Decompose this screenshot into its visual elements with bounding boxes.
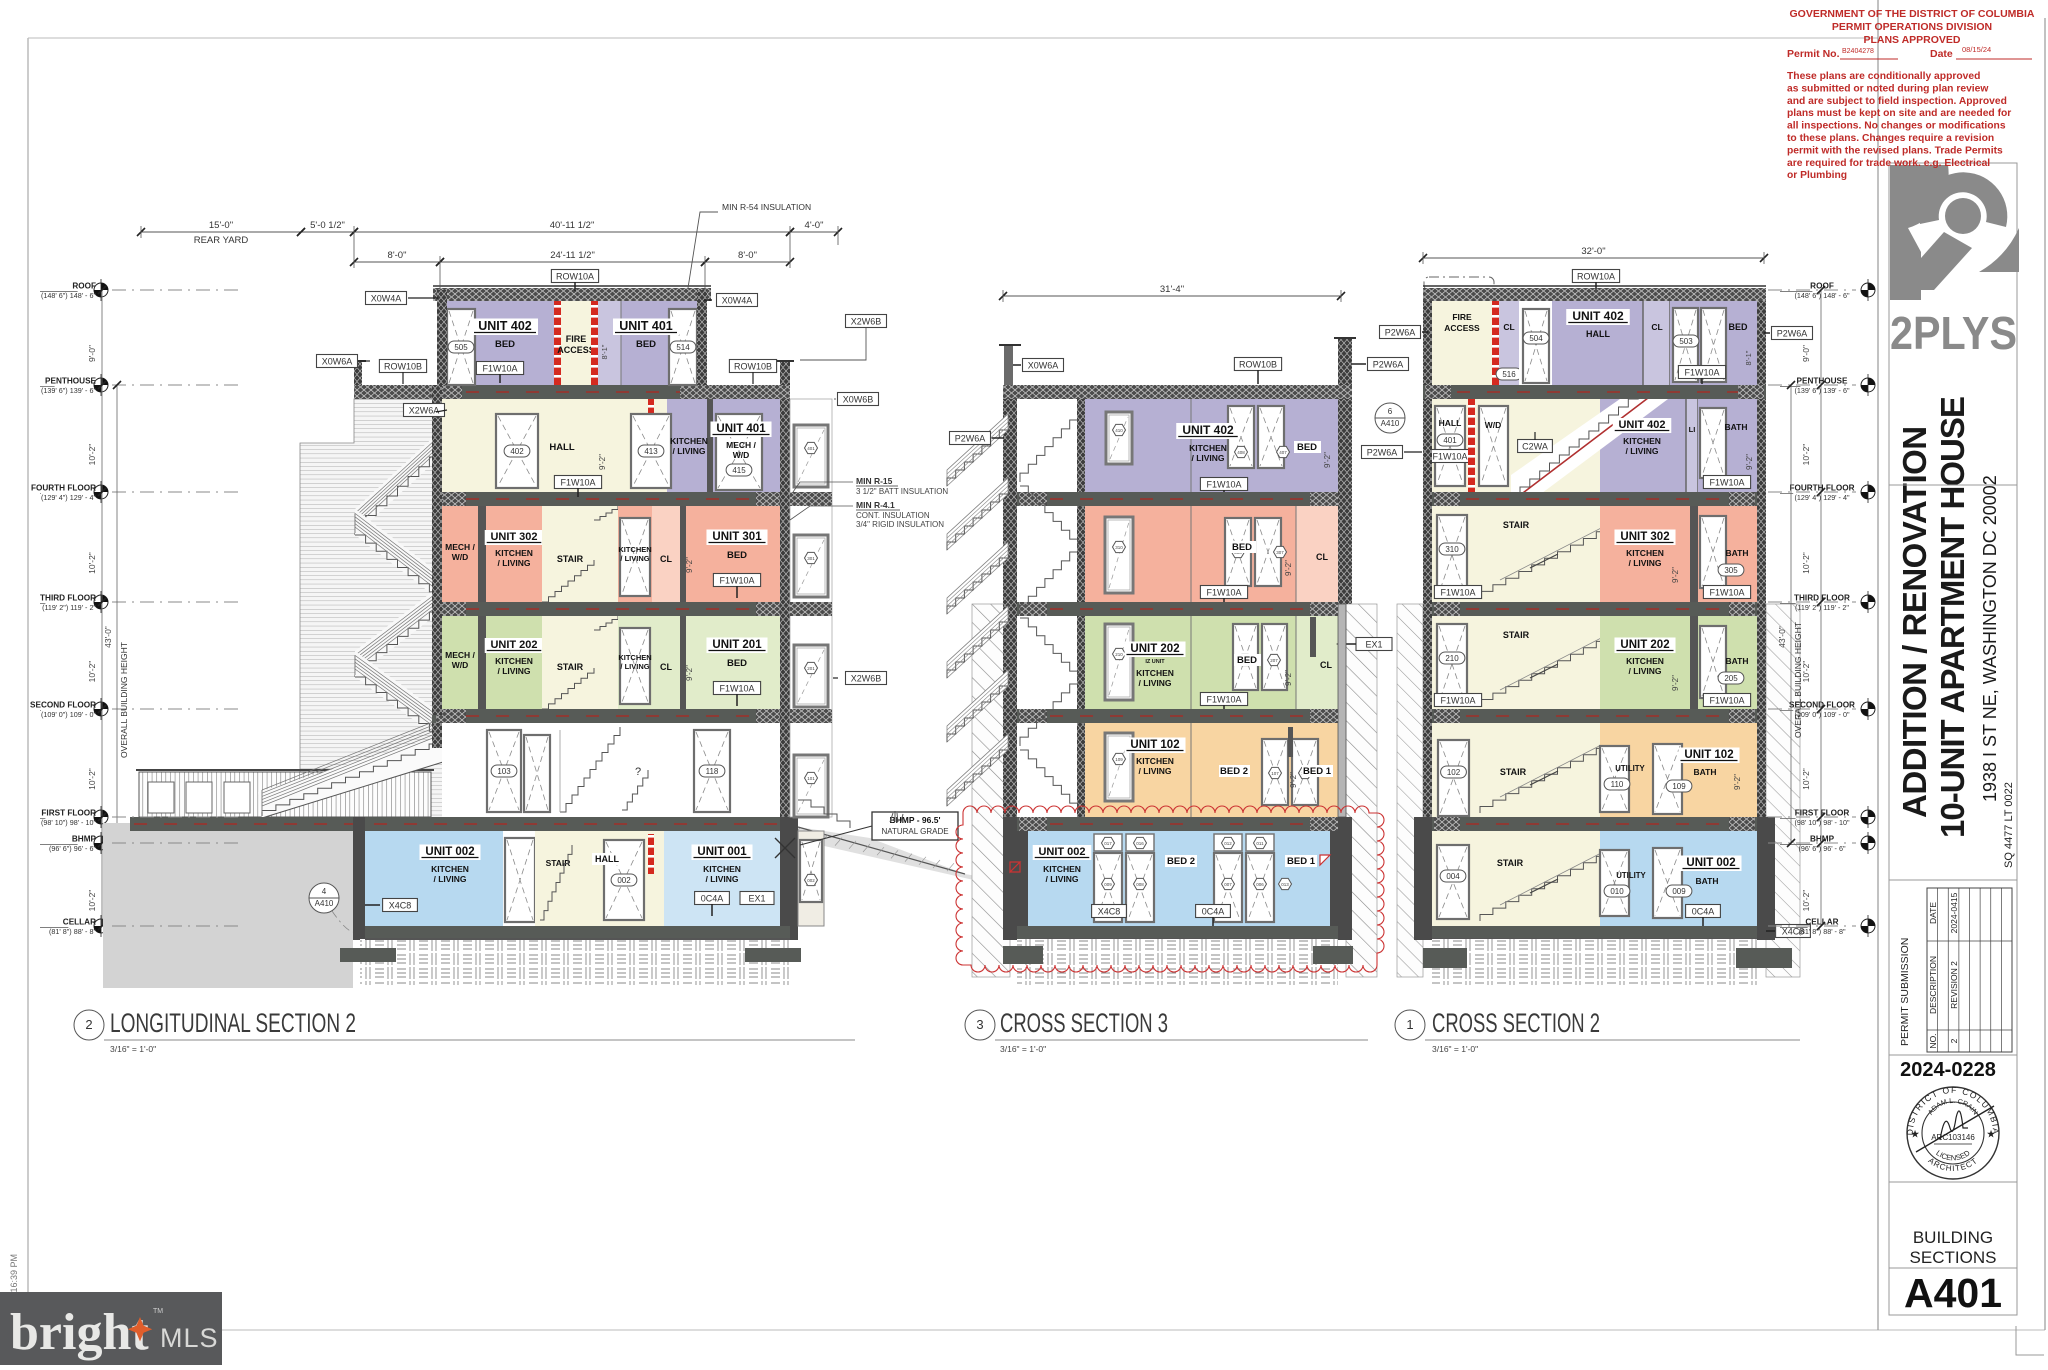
svg-text:UNIT 402: UNIT 402 (1618, 419, 1665, 431)
svg-text:410: 410 (1115, 428, 1123, 433)
svg-text:/ LIVING: / LIVING (620, 554, 649, 563)
svg-text:F1W10A: F1W10A (1709, 587, 1744, 597)
svg-text:40'-11 1/2": 40'-11 1/2" (550, 220, 595, 231)
svg-text:DATE: DATE (1928, 902, 1938, 924)
svg-text:401: 401 (807, 446, 815, 451)
svg-text:(139' 6") 139' - 6": (139' 6") 139' - 6" (41, 386, 96, 395)
svg-text:STAIR: STAIR (557, 662, 584, 672)
svg-text:/ LIVING: / LIVING (433, 874, 466, 884)
svg-text:LONGITUDINAL SECTION 2: LONGITUDINAL SECTION 2 (110, 1008, 356, 1038)
svg-text:8'-0": 8'-0" (738, 250, 757, 261)
svg-text:?: ? (635, 766, 641, 778)
svg-text:4'-0": 4'-0" (805, 220, 824, 231)
svg-text:10'-2": 10'-2" (87, 444, 97, 466)
svg-text:10'-2": 10'-2" (87, 552, 97, 574)
svg-text:BED: BED (1728, 322, 1748, 332)
svg-text:KITCHEN: KITCHEN (1043, 864, 1081, 874)
svg-text:(119' 2") 119' - 2": (119' 2") 119' - 2" (1795, 603, 1849, 612)
svg-text:PERMIT OPERATIONS DIVISION: PERMIT OPERATIONS DIVISION (1832, 21, 1992, 33)
svg-text:CL: CL (660, 554, 672, 564)
svg-text:9'-2": 9'-2" (1289, 772, 1298, 788)
svg-text:BED 2: BED 2 (1167, 856, 1195, 867)
svg-text:301: 301 (807, 556, 815, 561)
svg-text:504: 504 (1529, 334, 1543, 343)
svg-text:/ LIVING: / LIVING (1628, 558, 1661, 568)
svg-text:OVERALL BUILDING HEIGHT: OVERALL BUILDING HEIGHT (1793, 622, 1803, 738)
svg-text:C2WA: C2WA (1522, 441, 1548, 451)
svg-text:HALL: HALL (595, 854, 619, 864)
svg-text:B2404278: B2404278 (1842, 48, 1874, 55)
svg-text:to these plans. Changes requi: to these plans. Changes require a revisi… (1787, 133, 1994, 144)
svg-text:009: 009 (1672, 887, 1686, 896)
svg-text:8'-0": 8'-0" (388, 250, 407, 261)
svg-text:IZ UNIT: IZ UNIT (1145, 659, 1165, 665)
svg-text:/ LIVING: / LIVING (1628, 666, 1661, 676)
svg-text:2024-0228: 2024-0228 (1900, 1059, 1996, 1081)
svg-text:EX1: EX1 (1365, 639, 1382, 649)
svg-text:UNIT 402: UNIT 402 (1182, 423, 1234, 437)
svg-text:(129' 4") 129' - 4": (129' 4") 129' - 4" (41, 493, 96, 502)
svg-text:GOVERNMENT OF THE DISTRICT OF: GOVERNMENT OF THE DISTRICT OF COLUMBIA (1790, 8, 2035, 20)
svg-text:503: 503 (1679, 337, 1693, 346)
svg-text:CL: CL (1320, 660, 1332, 670)
svg-text:/ LIVING: / LIVING (497, 558, 530, 568)
svg-text:(98' 10") 98' - 10": (98' 10") 98' - 10" (41, 818, 96, 827)
svg-text:F1W10A: F1W10A (1432, 451, 1467, 461)
svg-text:X0W4A: X0W4A (371, 293, 402, 303)
svg-text:SECOND FLOOR: SECOND FLOOR (30, 701, 96, 710)
svg-text:P2W6A: P2W6A (1777, 328, 1808, 338)
svg-text:(119' 2") 119' - 2": (119' 2") 119' - 2" (42, 603, 96, 612)
svg-text:THIRD FLOOR: THIRD FLOOR (40, 594, 96, 603)
svg-text:BED: BED (1237, 655, 1257, 666)
svg-text:KITCHEN: KITCHEN (1623, 436, 1661, 446)
svg-text:X0W6A: X0W6A (1028, 360, 1059, 370)
svg-text:plans must be kept on site and: plans must be kept on site and are neede… (1787, 108, 2011, 119)
svg-text:24'-11 1/2": 24'-11 1/2" (550, 250, 595, 261)
svg-text:ROW10A: ROW10A (1577, 271, 1615, 281)
svg-text:101: 101 (807, 776, 815, 781)
svg-text:32'-0": 32'-0" (1581, 246, 1605, 257)
svg-text:15'-0": 15'-0" (209, 220, 233, 231)
svg-text:408: 408 (1237, 450, 1245, 455)
svg-text:F1W10A: F1W10A (719, 575, 754, 585)
svg-text:★: ★ (1987, 1129, 1996, 1139)
svg-text:MECH /: MECH / (726, 440, 756, 450)
svg-text:X2W6B: X2W6B (851, 673, 882, 683)
svg-text:305: 305 (1724, 566, 1738, 575)
svg-text:BED 1: BED 1 (1287, 856, 1316, 867)
svg-text:MIN R-54 INSULATION: MIN R-54 INSULATION (722, 202, 811, 212)
svg-text:UNIT 401: UNIT 401 (716, 423, 766, 435)
svg-text:/ LIVING: / LIVING (1191, 453, 1224, 463)
svg-text:0C4A: 0C4A (701, 893, 724, 903)
svg-text:BATH: BATH (1726, 548, 1749, 558)
svg-text:516: 516 (1502, 370, 1516, 379)
svg-text:X0W4A: X0W4A (722, 295, 753, 305)
svg-text:109: 109 (1672, 782, 1686, 791)
svg-text:007: 007 (1224, 882, 1232, 887)
svg-text:PENTHOUSE: PENTHOUSE (45, 377, 96, 386)
svg-text:X2W6A: X2W6A (409, 405, 440, 415)
svg-text:010: 010 (1610, 887, 1624, 896)
svg-text:CL: CL (660, 662, 672, 672)
svg-text:CROSS SECTION 2: CROSS SECTION 2 (1432, 1008, 1600, 1038)
svg-text:P2W6A: P2W6A (955, 433, 986, 443)
svg-text:ACCESS: ACCESS (557, 345, 595, 355)
svg-text:CROSS SECTION 3: CROSS SECTION 3 (1000, 1008, 1168, 1038)
svg-text:10'-2": 10'-2" (87, 661, 97, 683)
svg-text:107: 107 (1271, 771, 1279, 776)
svg-text:BED: BED (495, 339, 515, 350)
svg-text:BUILDING: BUILDING (1913, 1228, 1993, 1247)
svg-text:KITCHEN: KITCHEN (618, 653, 651, 662)
svg-text:10'-2": 10'-2" (1801, 890, 1811, 912)
svg-text:118: 118 (706, 767, 719, 776)
svg-text:1938 I ST NE, WASHINGTON DC 20: 1938 I ST NE, WASHINGTON DC 20002 (1980, 475, 2000, 802)
svg-text:ARC103146: ARC103146 (1931, 1133, 1975, 1142)
svg-text:BED: BED (1297, 442, 1317, 453)
svg-text:F1W10A: F1W10A (482, 363, 517, 373)
svg-text:STAIR: STAIR (1497, 858, 1524, 868)
svg-text:EX1: EX1 (748, 893, 765, 903)
svg-text:KITCHEN: KITCHEN (1626, 656, 1664, 666)
svg-text:/ LIVING: / LIVING (1138, 766, 1171, 776)
svg-text:NATURAL GRADE: NATURAL GRADE (881, 827, 948, 836)
svg-text:FOURTH FLOOR: FOURTH FLOOR (31, 484, 96, 493)
svg-text:REAR YARD: REAR YARD (194, 235, 249, 246)
svg-text:F1W10A: F1W10A (560, 477, 595, 487)
svg-text:415: 415 (732, 466, 746, 475)
svg-text:08/15/24: 08/15/24 (1962, 45, 1991, 54)
svg-text:F1W10A: F1W10A (1709, 477, 1744, 487)
svg-text:BATH: BATH (1726, 656, 1749, 666)
svg-text:FIRE: FIRE (566, 334, 587, 344)
svg-text:3 1/2" BATT INSULATION: 3 1/2" BATT INSULATION (856, 487, 948, 496)
svg-text:/ LIVING: / LIVING (672, 446, 705, 456)
svg-text:A401: A401 (1904, 1270, 2002, 1316)
svg-text:F1W10A: F1W10A (1206, 479, 1241, 489)
svg-text:9'-2": 9'-2" (1284, 560, 1293, 576)
svg-text:UNIT 202: UNIT 202 (490, 639, 537, 651)
svg-text:9'-2": 9'-2" (598, 454, 607, 470)
svg-text:9'-2": 9'-2" (1671, 675, 1680, 691)
svg-text:/ LIVING: / LIVING (1045, 874, 1078, 884)
svg-text:(139' 6") 139' - 6": (139' 6") 139' - 6" (1795, 386, 1850, 395)
svg-text:004: 004 (1446, 872, 1460, 881)
svg-text:STAIR: STAIR (1500, 767, 1527, 777)
svg-text:REVISION 2: REVISION 2 (1949, 961, 1959, 1009)
svg-text:UTILITY: UTILITY (1616, 871, 1646, 880)
svg-text:31'-4": 31'-4" (1160, 284, 1184, 295)
svg-text:P2W6A: P2W6A (1385, 327, 1416, 337)
svg-text:505: 505 (454, 343, 468, 352)
svg-text:P2W6A: P2W6A (1373, 359, 1404, 369)
svg-text:43'-0": 43'-0" (1777, 626, 1787, 648)
svg-text:(81' 8") 88' - 8": (81' 8") 88' - 8" (1799, 927, 1846, 936)
svg-text:KITCHEN: KITCHEN (670, 436, 708, 446)
svg-text:KITCHEN: KITCHEN (495, 656, 533, 666)
svg-text:BED: BED (1232, 542, 1252, 553)
svg-text:ROW10A: ROW10A (556, 271, 594, 281)
svg-text:2: 2 (1949, 1038, 1959, 1043)
svg-text:KITCHEN: KITCHEN (1136, 756, 1174, 766)
svg-text:2024-0415: 2024-0415 (1949, 892, 1959, 933)
svg-text:UNIT 202: UNIT 202 (1130, 643, 1179, 655)
svg-text:BED 2: BED 2 (1220, 766, 1248, 777)
svg-text:F1W10A: F1W10A (719, 683, 754, 693)
svg-text:8'-1": 8'-1" (600, 344, 609, 359)
svg-text:KITCHEN: KITCHEN (618, 545, 651, 554)
svg-text:PLANS APPROVED: PLANS APPROVED (1863, 34, 1960, 46)
svg-text:ROW10B: ROW10B (734, 361, 772, 371)
svg-text:102: 102 (1447, 768, 1461, 777)
svg-text:012: 012 (1224, 841, 1232, 846)
svg-text:X0W6B: X0W6B (843, 394, 874, 404)
svg-text:F1W10A: F1W10A (1440, 587, 1475, 597)
svg-text:UNIT 302: UNIT 302 (1620, 531, 1669, 543)
svg-text:BATH: BATH (1696, 876, 1719, 886)
svg-text:all inspections. No changes o: all inspections. No changes or modificat… (1787, 121, 2006, 132)
svg-text:F1W10A: F1W10A (1684, 367, 1719, 377)
svg-text:SECTIONS: SECTIONS (1910, 1248, 1997, 1267)
svg-text:BED: BED (727, 658, 747, 669)
svg-text:(96' 6") 96' - 6": (96' 6") 96' - 6" (1799, 844, 1846, 853)
svg-text:UNIT 102: UNIT 102 (1130, 739, 1179, 751)
svg-text:bright: bright (10, 1304, 149, 1361)
svg-text:9'-2": 9'-2" (1745, 454, 1754, 470)
svg-text:514: 514 (676, 343, 690, 352)
svg-text:10'-2": 10'-2" (87, 890, 97, 912)
svg-text:F1W10A: F1W10A (1440, 695, 1475, 705)
svg-text:5'-0 1/2": 5'-0 1/2" (310, 220, 345, 231)
svg-text:009: 009 (1104, 882, 1112, 887)
svg-text:BHMP: BHMP (72, 835, 97, 844)
svg-text:OVERALL BUILDING HEIGHT: OVERALL BUILDING HEIGHT (119, 642, 129, 758)
svg-text:UNIT 301: UNIT 301 (712, 531, 762, 543)
svg-text:(148' 6") 148' - 6": (148' 6") 148' - 6" (41, 291, 96, 300)
svg-text:10'-2": 10'-2" (1801, 444, 1811, 466)
svg-text:207: 207 (1270, 658, 1278, 663)
svg-text:ROW10B: ROW10B (384, 361, 422, 371)
svg-text:or Plumbing: or Plumbing (1787, 170, 1847, 181)
svg-text:401: 401 (1443, 436, 1457, 445)
svg-text:PERMIT SUBMISSION: PERMIT SUBMISSION (1899, 938, 1911, 1046)
svg-text:UNIT 302: UNIT 302 (490, 531, 537, 543)
svg-text:F1W10A: F1W10A (1206, 587, 1241, 597)
svg-text:UNIT 402: UNIT 402 (1572, 309, 1624, 323)
svg-text:KITCHEN: KITCHEN (1189, 443, 1227, 453)
svg-text:and are subject to field inspe: and are subject to field inspection. App… (1787, 96, 2007, 107)
svg-text:3/16" = 1'-0": 3/16" = 1'-0" (110, 1044, 156, 1054)
svg-text:ROOF: ROOF (72, 282, 96, 291)
svg-text:017: 017 (1104, 841, 1112, 846)
svg-text:Permit No.: Permit No. (1787, 48, 1840, 60)
svg-text:X0W6A: X0W6A (322, 356, 353, 366)
svg-text:LI: LI (1689, 425, 1696, 434)
svg-text:205: 205 (1724, 674, 1738, 683)
svg-text:0C4A: 0C4A (1202, 906, 1225, 916)
svg-text:W/D: W/D (452, 660, 469, 670)
svg-text:109: 109 (1115, 757, 1123, 762)
svg-text:2: 2 (85, 1017, 92, 1032)
svg-text:(98' 10") 98' - 10": (98' 10") 98' - 10" (1795, 818, 1850, 827)
svg-text:(109' 0") 109' - 0": (109' 0") 109' - 0" (41, 710, 96, 719)
svg-text:KITCHEN: KITCHEN (1626, 548, 1664, 558)
svg-text:MIN R-4.1: MIN R-4.1 (856, 500, 895, 510)
svg-text:011: 011 (1256, 841, 1264, 846)
svg-text:DESCRIPTION: DESCRIPTION (1928, 956, 1938, 1014)
svg-text:UNIT 002: UNIT 002 (425, 846, 474, 858)
svg-text:MECH /: MECH / (445, 542, 475, 552)
svg-text:SQ 4477 LT 0022: SQ 4477 LT 0022 (2003, 782, 2015, 868)
svg-text:307: 307 (1276, 550, 1284, 555)
svg-text:103: 103 (497, 767, 511, 776)
svg-text:9'-2": 9'-2" (1323, 452, 1332, 468)
svg-text:110: 110 (1611, 780, 1624, 789)
svg-text:HALL: HALL (1586, 329, 1610, 339)
svg-text:ACCESS: ACCESS (1444, 323, 1480, 333)
svg-text:X4C8: X4C8 (1098, 906, 1121, 916)
svg-text:9'-2": 9'-2" (685, 665, 694, 681)
svg-text:4: 4 (322, 887, 327, 896)
svg-text:9'-0": 9'-0" (87, 345, 97, 362)
svg-text:/ LIVING: / LIVING (497, 666, 530, 676)
svg-text:UNIT 102: UNIT 102 (1684, 749, 1733, 761)
svg-text:KITCHEN: KITCHEN (495, 548, 533, 558)
svg-text:9'-2": 9'-2" (1284, 670, 1293, 686)
svg-text:W/D: W/D (733, 450, 750, 460)
svg-text:10'-2": 10'-2" (1801, 552, 1811, 574)
svg-text:201: 201 (807, 666, 815, 671)
svg-text:CL: CL (1316, 552, 1328, 562)
svg-text:HALL: HALL (1439, 418, 1462, 428)
svg-text:STAIR: STAIR (1503, 630, 1530, 640)
svg-text:MIN R-15: MIN R-15 (856, 476, 893, 486)
svg-text:UNIT 002: UNIT 002 (1686, 857, 1735, 869)
svg-text:10'-2": 10'-2" (87, 768, 97, 790)
svg-text:016: 016 (1136, 841, 1144, 846)
svg-text:P2W6A: P2W6A (1367, 447, 1398, 457)
svg-text:STAIR: STAIR (557, 554, 584, 564)
svg-text:BATH: BATH (1694, 767, 1717, 777)
svg-text:MECH /: MECH / (445, 650, 475, 660)
svg-text:/ LIVING: / LIVING (620, 662, 649, 671)
svg-text:43'-0": 43'-0" (103, 626, 113, 648)
svg-text:9'-2": 9'-2" (1733, 774, 1742, 790)
svg-text:(96' 6") 96' - 6": (96' 6") 96' - 6" (49, 844, 96, 853)
svg-text:210: 210 (1445, 654, 1459, 663)
svg-text:A410: A410 (1381, 419, 1400, 428)
svg-text:W/D: W/D (1485, 420, 1502, 430)
svg-text:310: 310 (1115, 545, 1123, 550)
svg-text:UNIT 001: UNIT 001 (697, 846, 747, 858)
svg-text:BED 1: BED 1 (1303, 766, 1332, 777)
svg-text:FIRST FLOOR: FIRST FLOOR (41, 809, 96, 818)
svg-text:/ LIVING: / LIVING (1625, 446, 1658, 456)
svg-text:002: 002 (807, 878, 815, 883)
svg-text:MLS: MLS (160, 1323, 219, 1353)
svg-text:(148' 6") 148' - 6": (148' 6") 148' - 6" (1795, 291, 1850, 300)
svg-text:BED: BED (727, 550, 747, 561)
svg-text:CL: CL (1651, 322, 1662, 332)
svg-text:NO.: NO. (1928, 1033, 1938, 1048)
svg-text:(129' 4") 129' - 4": (129' 4") 129' - 4" (1795, 493, 1850, 502)
svg-text:★: ★ (1911, 1129, 1920, 1139)
svg-text:3/16" = 1'-0": 3/16" = 1'-0" (1000, 1044, 1046, 1054)
svg-text:UNIT 202: UNIT 202 (1620, 639, 1669, 651)
svg-text:BED: BED (636, 339, 656, 350)
svg-text:013: 013 (1281, 882, 1289, 887)
svg-text:as submitted or noted during p: as submitted or noted during plan review (1787, 83, 1989, 94)
svg-text:STAIR: STAIR (1503, 520, 1530, 530)
svg-text:F1W10A: F1W10A (1709, 695, 1744, 705)
svg-text:Date: Date (1930, 48, 1953, 60)
svg-text:002: 002 (617, 876, 631, 885)
svg-text:CELLAR: CELLAR (63, 918, 96, 927)
svg-text:STAIR: STAIR (546, 858, 571, 868)
svg-text:BATH: BATH (1725, 422, 1748, 432)
svg-text:A410: A410 (315, 899, 334, 908)
svg-text:9'-0": 9'-0" (1801, 345, 1811, 362)
svg-text:FIRE: FIRE (1452, 312, 1472, 322)
svg-text:310: 310 (1445, 545, 1459, 554)
svg-text:X4C8: X4C8 (389, 900, 412, 910)
svg-text:10-UNIT APARTMENT HOUSE: 10-UNIT APARTMENT HOUSE (1934, 397, 1971, 838)
svg-text:8'-1": 8'-1" (1744, 350, 1753, 365)
svg-text:CL: CL (1503, 322, 1514, 332)
svg-text:TM: TM (153, 1308, 163, 1315)
svg-text:are required for trade work.: are required for trade work. e.g. Electr… (1787, 158, 1990, 169)
svg-text:UNIT 401: UNIT 401 (619, 319, 673, 333)
svg-text:210: 210 (1115, 652, 1123, 657)
svg-text:UTILITY: UTILITY (1615, 764, 1645, 773)
svg-text:These plans are conditionally: These plans are conditionally approved (1787, 71, 1980, 82)
svg-text:008: 008 (1136, 882, 1144, 887)
svg-text:F1W10A: F1W10A (1206, 694, 1241, 704)
svg-text:9'-2": 9'-2" (685, 557, 694, 573)
svg-text:KITCHEN: KITCHEN (431, 864, 469, 874)
svg-text:3: 3 (976, 1017, 983, 1032)
svg-text:0C4A: 0C4A (1692, 906, 1715, 916)
svg-text:402: 402 (510, 447, 524, 456)
svg-text:/ LIVING: / LIVING (705, 874, 738, 884)
svg-text:X2W6B: X2W6B (851, 316, 882, 326)
svg-text:UNIT 402: UNIT 402 (478, 319, 532, 333)
svg-text:CONT. INSULATION: CONT. INSULATION (856, 511, 930, 520)
svg-text:KITCHEN: KITCHEN (1136, 668, 1174, 678)
svg-text:/ LIVING: / LIVING (1138, 678, 1171, 688)
svg-text:ROW10B: ROW10B (1239, 359, 1277, 369)
svg-text:permit with the revised plans.: permit with the revised plans. Trade Per… (1787, 145, 2003, 156)
svg-text:HALL: HALL (549, 442, 575, 453)
svg-text:407: 407 (1279, 450, 1287, 455)
svg-text:006: 006 (1256, 882, 1264, 887)
svg-text:10'-2": 10'-2" (1801, 768, 1811, 790)
svg-text:1: 1 (1406, 1017, 1413, 1032)
svg-text:3/16" = 1'-0": 3/16" = 1'-0" (1432, 1044, 1478, 1054)
svg-text:(81' 8") 88' - 8": (81' 8") 88' - 8" (49, 927, 96, 936)
svg-text:3/4" RIGID INSULATION: 3/4" RIGID INSULATION (856, 520, 944, 529)
svg-text:UNIT 002: UNIT 002 (1038, 846, 1085, 858)
svg-text:KITCHEN: KITCHEN (703, 864, 741, 874)
svg-text:2PLYS: 2PLYS (1890, 307, 2017, 359)
svg-text:6: 6 (1388, 407, 1393, 416)
svg-text:413: 413 (644, 447, 658, 456)
svg-text:W/D: W/D (452, 552, 469, 562)
svg-text:9'-2": 9'-2" (1671, 567, 1680, 583)
svg-text:UNIT 201: UNIT 201 (712, 639, 762, 651)
